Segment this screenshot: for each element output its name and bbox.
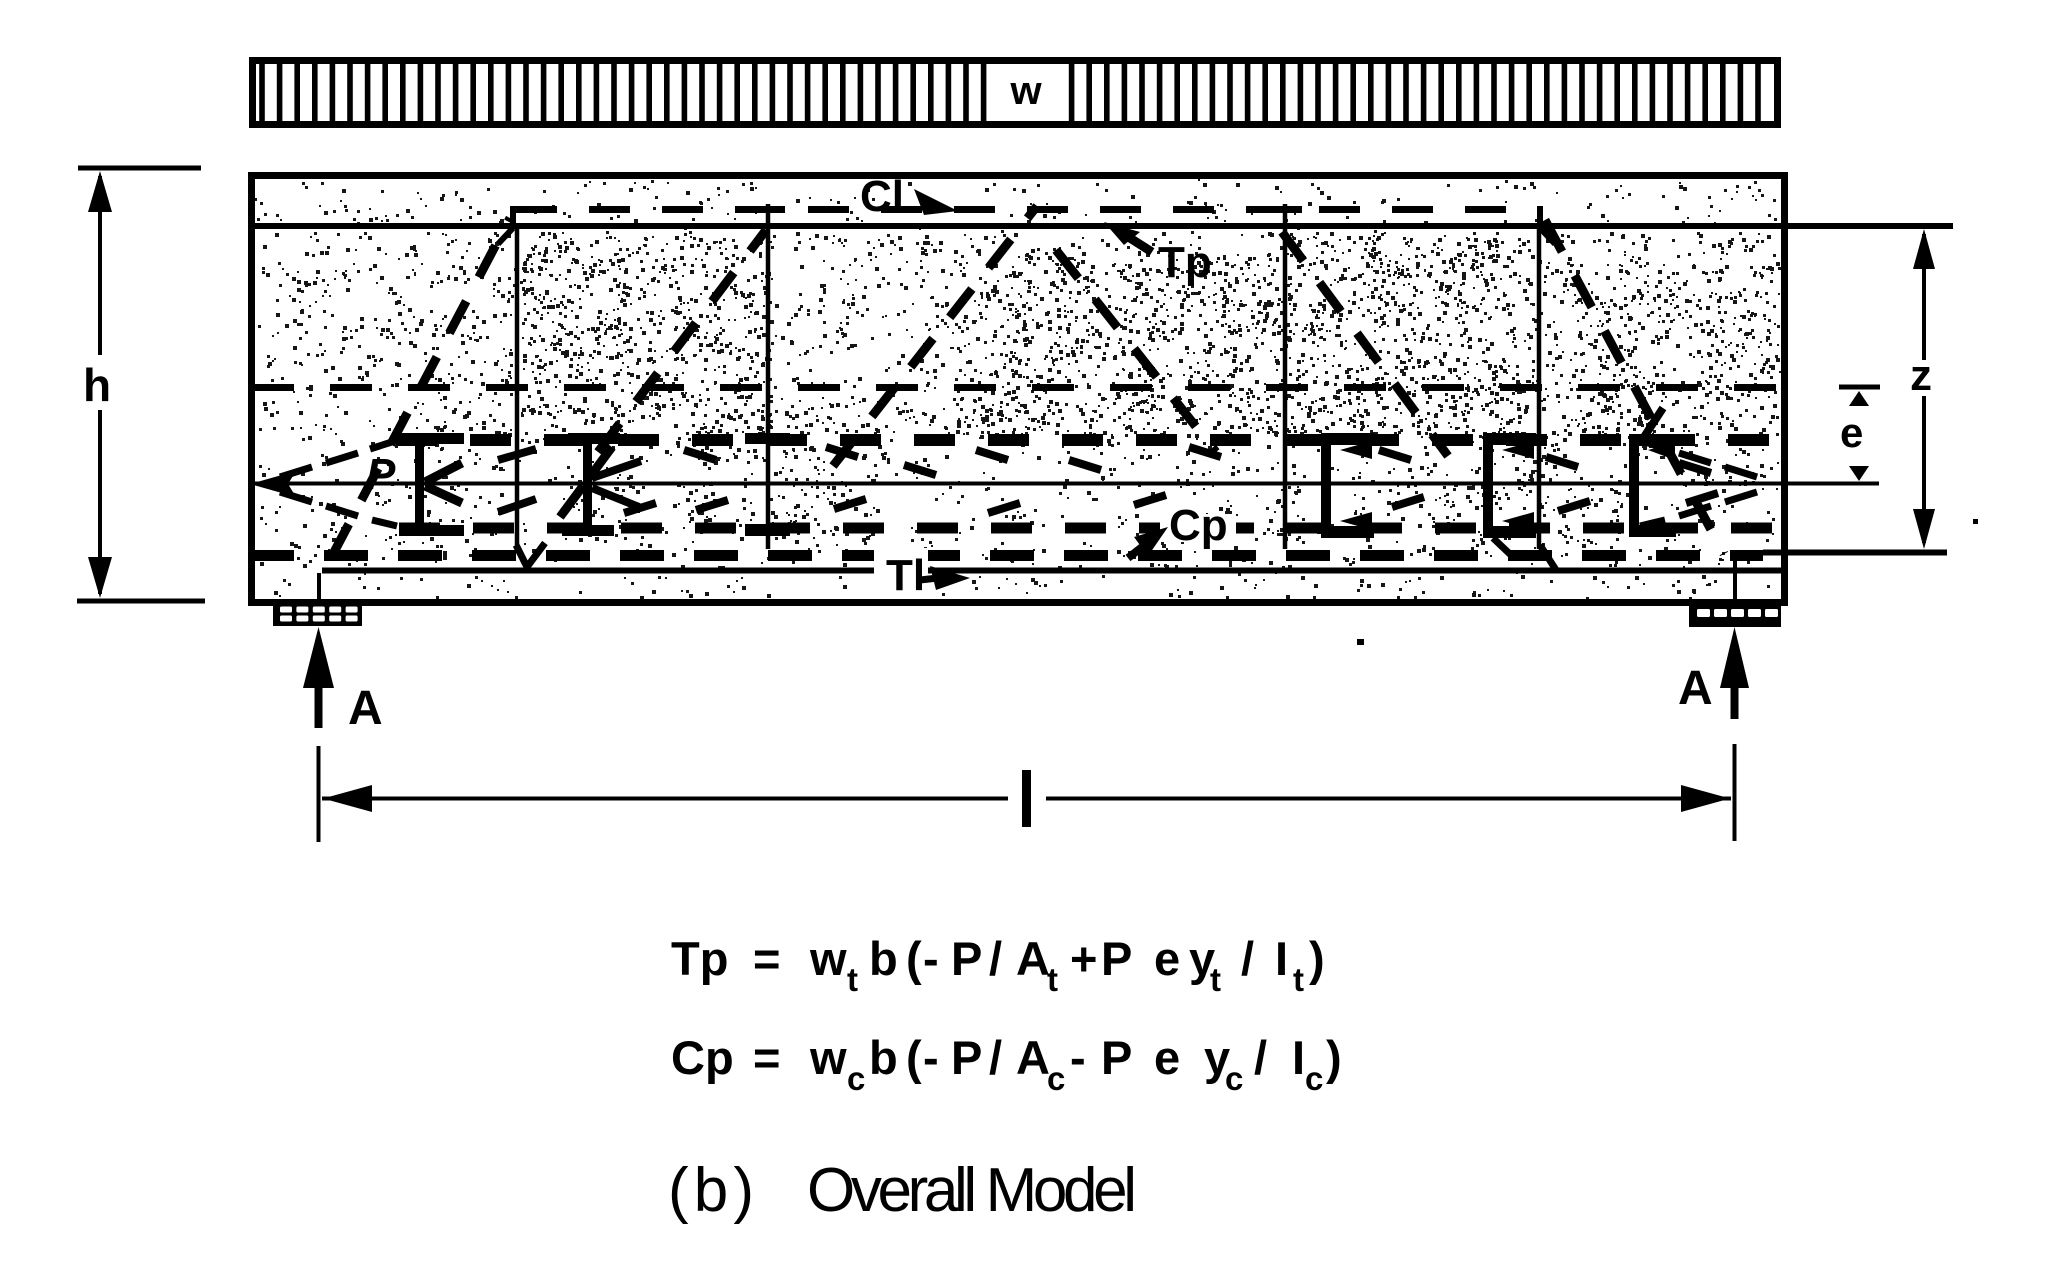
svg-text:Overall Model: Overall Model [807, 1156, 1137, 1225]
svg-text:A: A [1678, 662, 1713, 715]
svg-text:Tl: Tl [886, 551, 925, 600]
svg-text:Cl: Cl [860, 172, 904, 221]
svg-text:e: e [1840, 409, 1863, 456]
svg-text:(b): (b) [668, 1156, 754, 1225]
svg-text:w: w [1009, 69, 1042, 113]
svg-text:Cp: Cp [1169, 501, 1228, 550]
svg-text:A: A [348, 682, 383, 735]
svg-text:h: h [83, 359, 111, 411]
svg-text:Tp: Tp [1158, 238, 1212, 287]
svg-text:z: z [1910, 351, 1932, 400]
